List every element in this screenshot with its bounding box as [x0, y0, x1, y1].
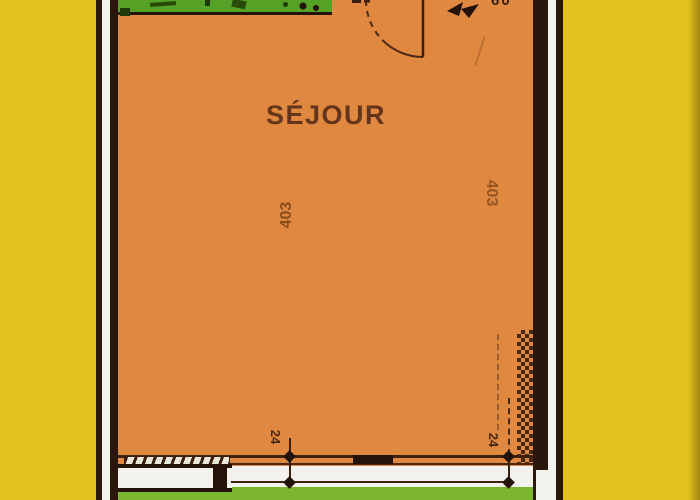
radiator-hatch-icon: [517, 330, 534, 463]
door-arc-dashed: [366, 0, 383, 40]
left-wall-core: [102, 0, 110, 500]
faint-dashed-line: [497, 334, 499, 430]
dimension-arrow-icon: [447, 2, 463, 16]
right-wall-core: [548, 0, 556, 500]
dimension-arrow-icon: [461, 4, 479, 18]
door-arc-solid: [383, 40, 423, 57]
page-edge-shadow: [688, 0, 700, 500]
window-pier: [353, 455, 393, 464]
channel-bottom-border: [110, 488, 232, 492]
dimension-line-bottom: [231, 481, 511, 483]
door-swing-icon: [280, 0, 540, 70]
cutoff-mark: [352, 0, 361, 3]
dimension-403-left: 403: [265, 192, 309, 238]
plant-mark-icon: [205, 0, 210, 6]
floorplan-page: 60 SÉJOUR 403 403 24 24: [0, 0, 700, 500]
hinge-dot-icon: [313, 5, 319, 11]
plant-mark-icon: [120, 8, 130, 16]
right-wall-bottom-gap: [536, 470, 548, 500]
hinge-dot-icon: [300, 3, 307, 10]
room-label: SÉJOUR: [266, 100, 386, 131]
dimension-24-left: 24: [263, 423, 289, 451]
cutoff-dimension-text: 60: [489, 0, 517, 9]
dimension-line-right-dashed: [508, 398, 510, 455]
dimension-403-right: 403: [469, 170, 513, 216]
dimension-60-label: 60: [491, 0, 512, 9]
dimension-24-right: 24: [481, 426, 507, 454]
